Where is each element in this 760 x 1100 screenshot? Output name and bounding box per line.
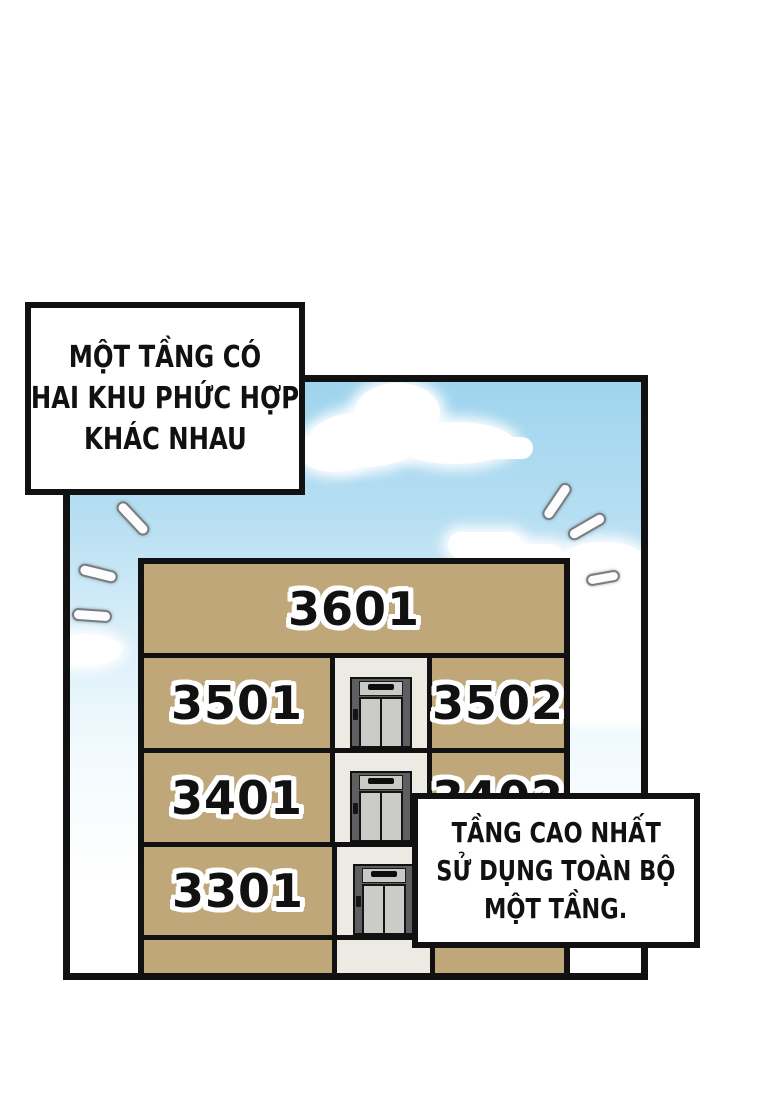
unit-cell: 3502 <box>432 658 564 748</box>
elevator-doors <box>359 791 403 840</box>
elevator-doors <box>362 884 406 933</box>
elevator-indicator <box>362 868 406 883</box>
unit-number: 3601 <box>288 582 420 636</box>
elevator-button-icon <box>356 896 361 907</box>
caption-line: KHÁC NHAU <box>84 417 247 463</box>
unit-number: 3401 <box>171 771 303 825</box>
elevator-button-icon <box>353 803 358 814</box>
caption-line: HAI KHU PHỨC HỢP <box>31 376 299 422</box>
cloud <box>63 634 122 666</box>
elevator-indicator <box>359 681 403 696</box>
unit-number: 3502 <box>432 676 564 730</box>
unit-number: 3301 <box>172 864 304 918</box>
unit-number: 3501 <box>171 676 303 730</box>
elevator-icon <box>350 677 412 748</box>
elevator-shaft <box>330 658 432 748</box>
caption-line: SỬ DỤNG TOÀN BỘ <box>436 849 675 892</box>
emphasis-dash-icon <box>72 608 113 624</box>
cloud <box>455 437 533 459</box>
caption-box-bottom-right: TẦNG CAO NHẤT SỬ DỤNG TOÀN BỘ MỘT TẦNG. <box>412 793 700 948</box>
comic-page: 3601 3501 3502 3401 <box>0 0 760 1100</box>
cloud <box>298 430 370 472</box>
unit-cell: 3501 <box>144 658 330 748</box>
elevator-icon <box>350 771 412 842</box>
unit-cell: 3301 <box>144 847 332 935</box>
floor-35: 3501 3502 <box>144 658 564 753</box>
caption-line: MỘT TẦNG CÓ <box>69 335 262 381</box>
elevator-icon <box>353 864 415 935</box>
elevator-button-icon <box>353 709 358 720</box>
unit-cell: 3401 <box>144 753 330 842</box>
elevator-indicator <box>359 775 403 790</box>
floor-36: 3601 <box>144 564 564 658</box>
elevator-doors <box>359 697 403 746</box>
caption-box-top-left: MỘT TẦNG CÓ HAI KHU PHỨC HỢP KHÁC NHAU <box>25 302 305 495</box>
caption-line: TẦNG CAO NHẤT <box>451 811 660 854</box>
caption-line: MỘT TẦNG. <box>484 887 627 930</box>
